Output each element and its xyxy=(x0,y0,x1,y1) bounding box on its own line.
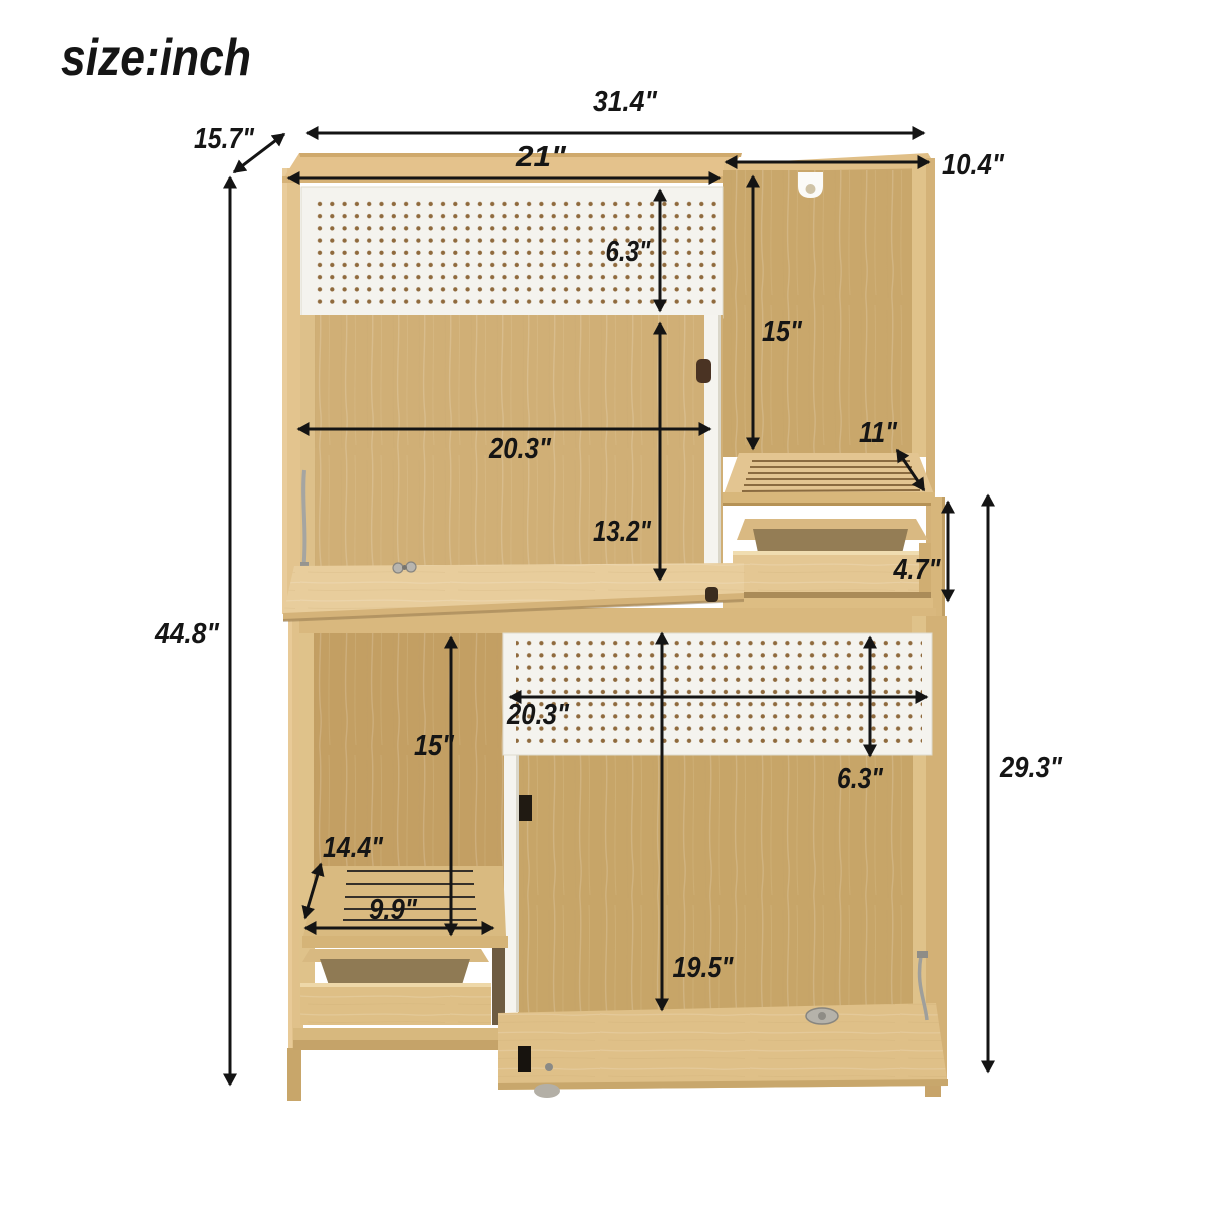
svg-text:44.8": 44.8" xyxy=(154,618,220,650)
svg-text:11": 11" xyxy=(859,417,898,449)
svg-text:6.3": 6.3" xyxy=(606,236,652,268)
svg-text:13.2": 13.2" xyxy=(593,516,652,548)
svg-text:19.5": 19.5" xyxy=(673,952,735,984)
svg-text:20.3": 20.3" xyxy=(506,699,570,731)
svg-text:20.3": 20.3" xyxy=(488,433,552,465)
svg-text:6.3": 6.3" xyxy=(837,763,884,795)
svg-text:21": 21" xyxy=(515,141,567,173)
svg-text:29.3": 29.3" xyxy=(999,752,1063,784)
svg-text:9.9": 9.9" xyxy=(369,894,418,926)
svg-text:14.4": 14.4" xyxy=(323,832,384,864)
svg-text:size:inch: size:inch xyxy=(61,29,251,87)
svg-text:15.7": 15.7" xyxy=(194,123,255,155)
svg-text:31.4": 31.4" xyxy=(593,86,658,118)
svg-text:10.4": 10.4" xyxy=(942,149,1005,181)
svg-text:15": 15" xyxy=(762,316,803,348)
svg-text:4.7": 4.7" xyxy=(893,554,942,586)
svg-text:15": 15" xyxy=(414,730,455,762)
